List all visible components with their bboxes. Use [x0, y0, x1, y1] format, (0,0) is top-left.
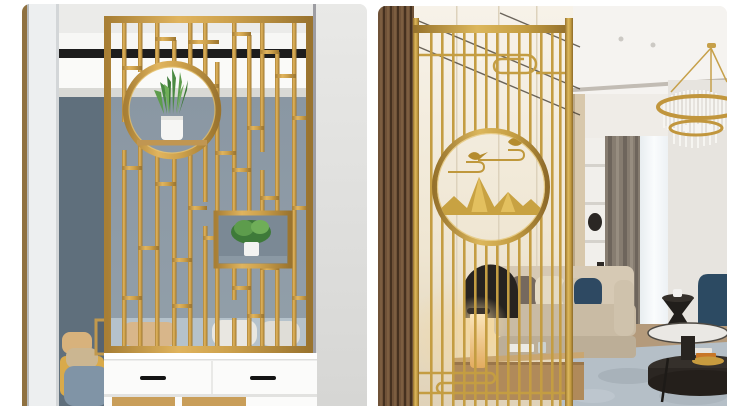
sofa-arm [614, 280, 634, 336]
right-scene [378, 6, 727, 406]
gold-tray [692, 357, 724, 366]
drawer-handle-right [250, 376, 276, 380]
downlight-2 [651, 43, 656, 48]
wood-slat-panel [378, 6, 414, 406]
cabinet-base-wood [112, 397, 175, 406]
product-photo-right[interactable] [378, 6, 727, 406]
door-frame-gold [22, 4, 27, 406]
shadow-box [216, 213, 290, 266]
circle-shelf [137, 140, 207, 146]
glowing-lamp [470, 312, 487, 368]
page-canvas [0, 0, 750, 406]
right-wall [313, 4, 367, 406]
tan-pillow-2 [66, 348, 98, 368]
screen-left-frame [413, 18, 419, 406]
drawer-cabinet [104, 353, 317, 406]
sheer-curtain [640, 136, 668, 350]
blue-sofa-arm [64, 366, 108, 406]
product-photo-left[interactable] [22, 4, 367, 406]
teal-armchair [698, 274, 727, 326]
downlight [619, 37, 624, 42]
cup [673, 289, 682, 297]
drawer-handle-left [140, 376, 166, 380]
screen-right-frame [565, 18, 573, 406]
shelf-vase [588, 213, 602, 231]
left-scene [22, 4, 367, 406]
screen-top-frame [413, 25, 573, 33]
shadow-box-pot [244, 242, 259, 256]
white-column [29, 4, 59, 406]
